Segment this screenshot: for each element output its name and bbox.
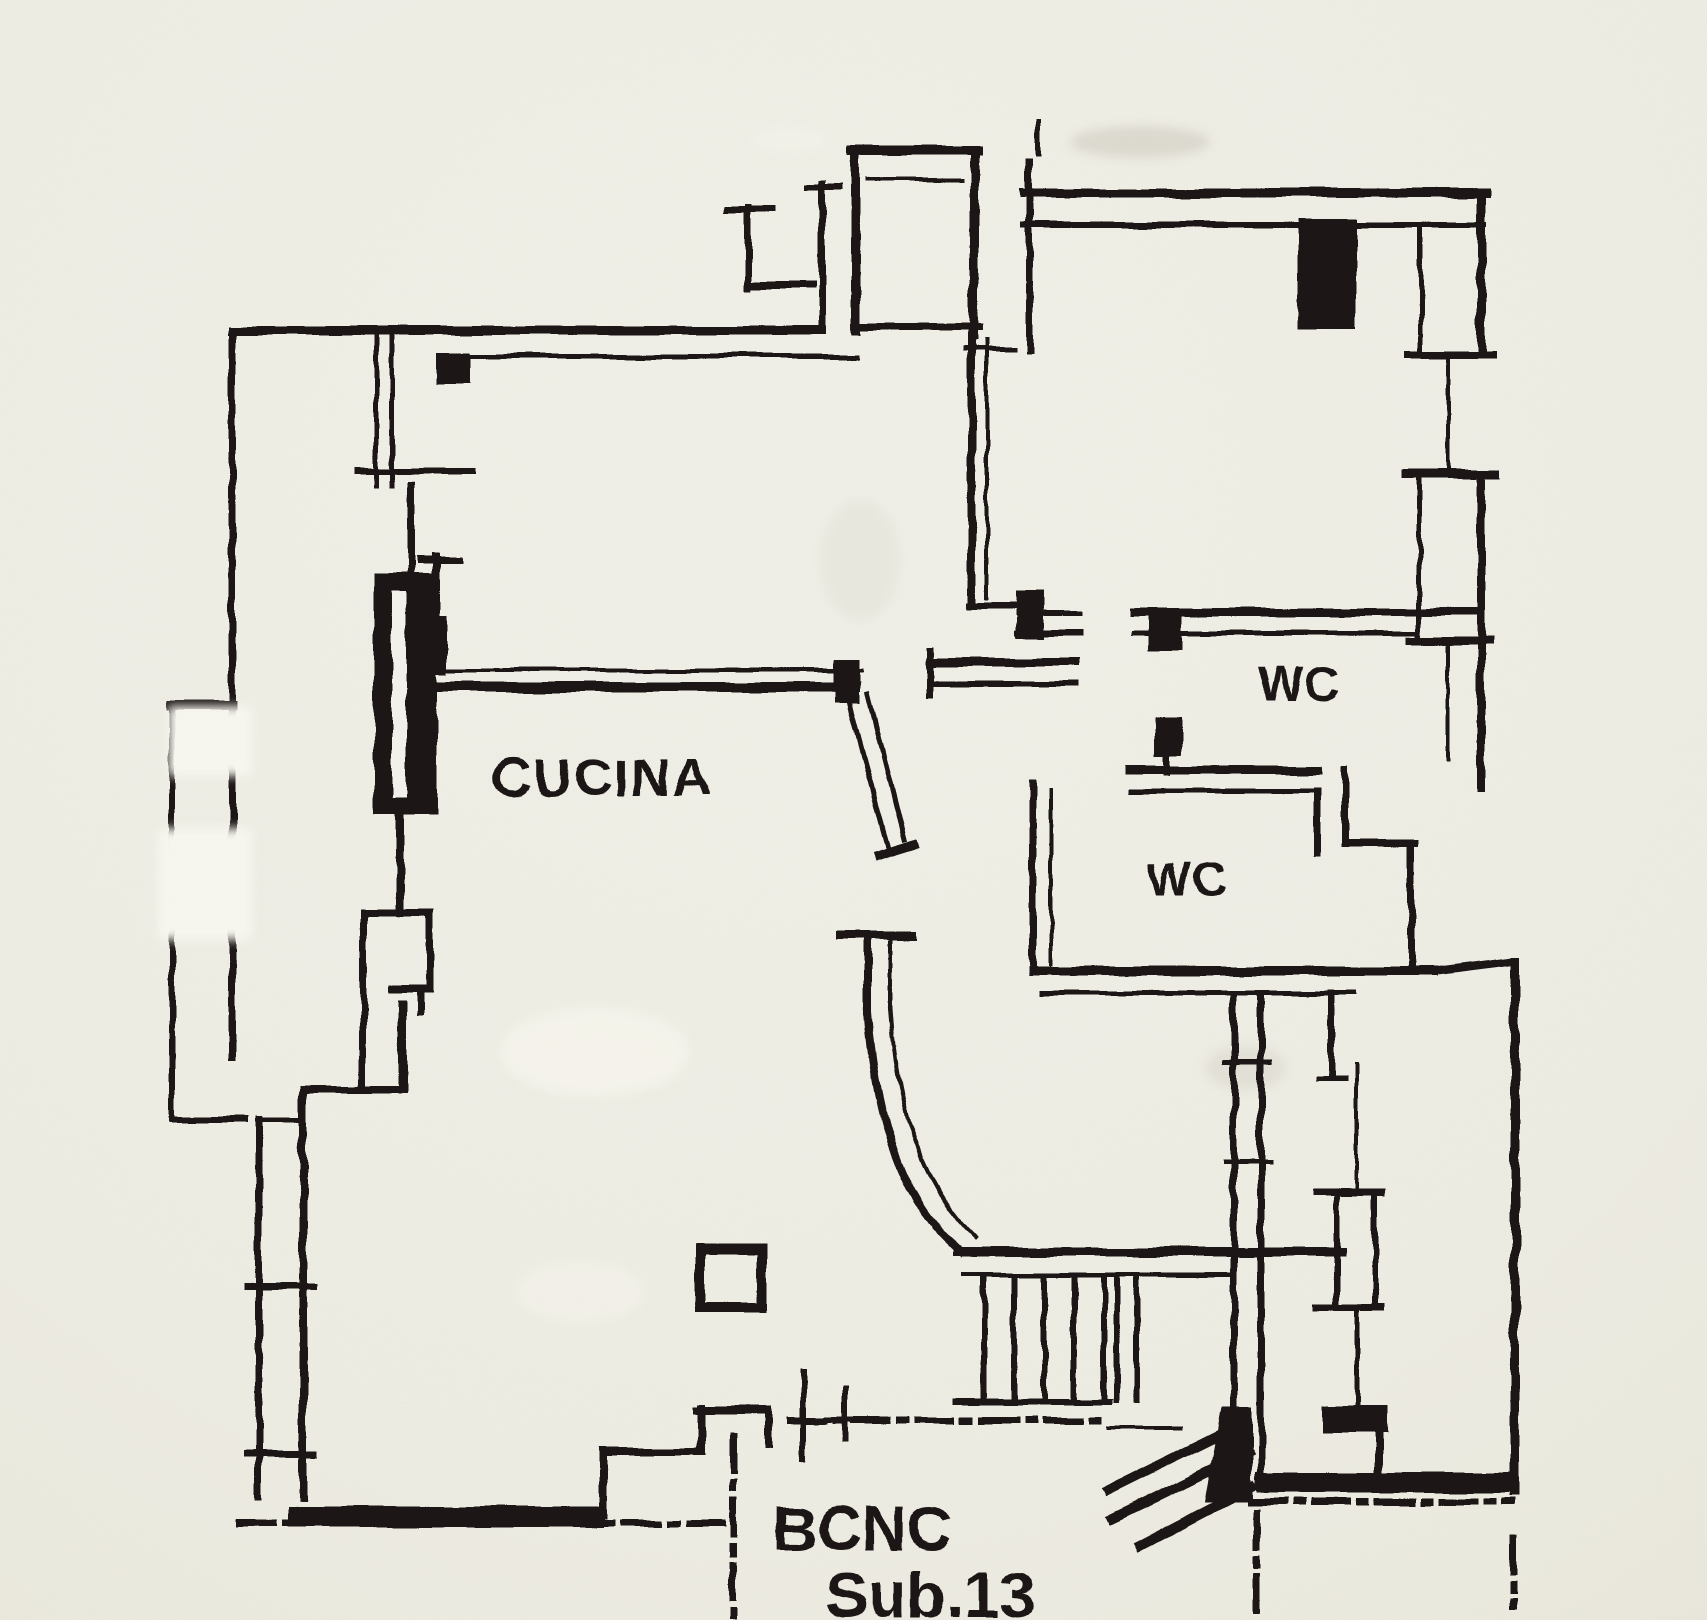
room-label-cucina: CUCINA	[491, 748, 713, 808]
room-label-wc-upper: WC	[1258, 658, 1340, 711]
floor-plan-page: CUCINA WC WC BCNC Sub.13	[0, 0, 1707, 1620]
room-label-wc-lower: WC	[1146, 854, 1228, 907]
area-label-bcnc: BCNC	[772, 1495, 951, 1564]
floor-plan-drawing: CUCINA WC WC BCNC Sub.13	[0, 0, 1707, 1620]
area-label-sub13: Sub.13	[825, 1559, 1035, 1620]
